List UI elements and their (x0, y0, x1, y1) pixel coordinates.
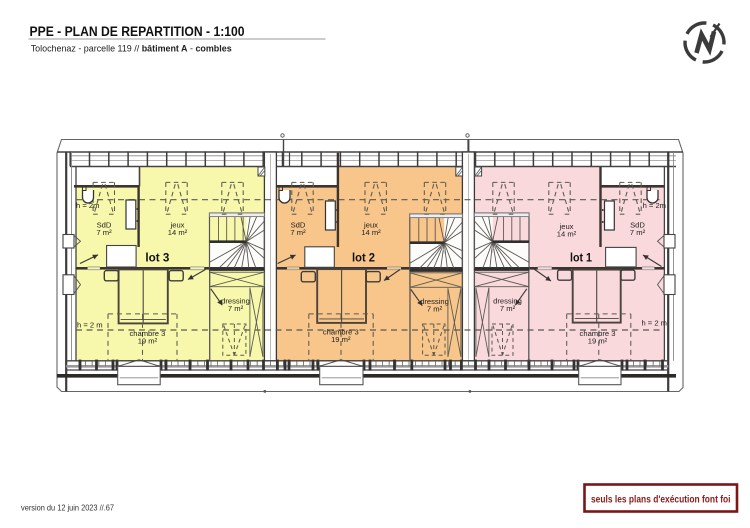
svg-text:7 m²: 7 m² (427, 304, 443, 313)
svg-text:lot 3: lot 3 (145, 253, 169, 265)
svg-text:19 m²: 19 m² (138, 336, 158, 345)
svg-text:version du 12 juin 2023 //.67: version du 12 juin 2023 //.67 (21, 504, 115, 513)
svg-text:Tolochenaz - parcelle 119 // b: Tolochenaz - parcelle 119 // bâtiment A … (31, 42, 232, 53)
svg-text:14 m²: 14 m² (168, 228, 188, 237)
svg-text:19 m²: 19 m² (588, 336, 608, 345)
svg-text:h = 2m: h = 2m (643, 201, 666, 210)
svg-text:14 m²: 14 m² (361, 228, 381, 237)
svg-text:7 m²: 7 m² (500, 304, 516, 313)
svg-text:lot 1: lot 1 (570, 253, 593, 265)
svg-text:7 m²: 7 m² (96, 228, 112, 237)
svg-text:h = 2 m: h = 2 m (641, 319, 667, 328)
svg-text:PPE - PLAN DE REPARTITION - 1:: PPE - PLAN DE REPARTITION - 1:100 (30, 24, 245, 40)
svg-text:7 m²: 7 m² (630, 228, 646, 237)
svg-text:14 m²: 14 m² (557, 229, 577, 238)
svg-text:h = 2m: h = 2m (76, 201, 99, 210)
svg-text:seuls les plans d'exécution fo: seuls les plans d'exécution font foi (591, 495, 731, 506)
svg-text:7 m²: 7 m² (290, 228, 306, 237)
svg-text:7 m²: 7 m² (228, 304, 244, 313)
svg-text:19 m²: 19 m² (331, 335, 351, 344)
svg-text:h = 2 m: h = 2 m (77, 321, 103, 330)
svg-text:lot 2: lot 2 (352, 253, 375, 265)
